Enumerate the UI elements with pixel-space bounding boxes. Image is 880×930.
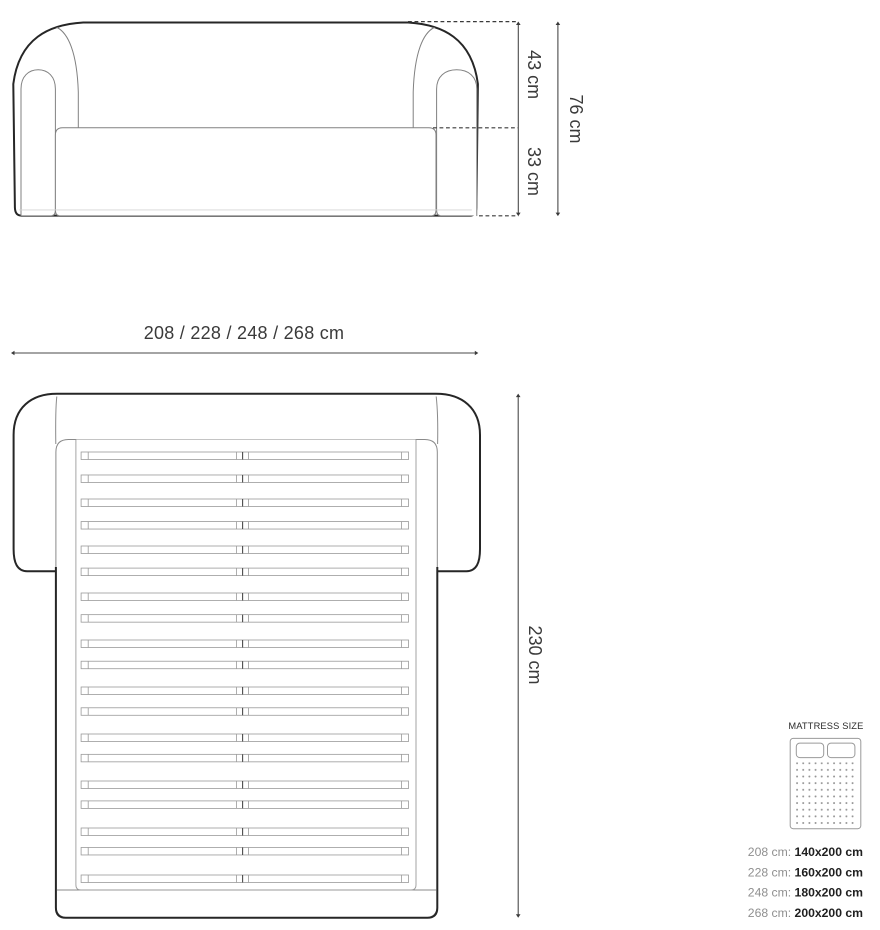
svg-text:248 cm: 180x200 cm: 248 cm: 180x200 cm: [748, 886, 863, 900]
svg-text:76 cm: 76 cm: [566, 94, 586, 143]
svg-text:230 cm: 230 cm: [525, 625, 545, 684]
svg-text:208 / 228 / 248 / 268 cm: 208 / 228 / 248 / 268 cm: [144, 323, 345, 343]
svg-text:MATTRESS SIZE: MATTRESS SIZE: [788, 721, 863, 731]
svg-text:208 cm: 140x200 cm: 208 cm: 140x200 cm: [748, 845, 863, 859]
svg-text:43 cm: 43 cm: [524, 50, 544, 99]
svg-text:228 cm: 160x200 cm: 228 cm: 160x200 cm: [748, 865, 863, 879]
svg-text:268 cm: 200x200 cm: 268 cm: 200x200 cm: [748, 906, 863, 920]
svg-text:33 cm: 33 cm: [524, 147, 544, 196]
